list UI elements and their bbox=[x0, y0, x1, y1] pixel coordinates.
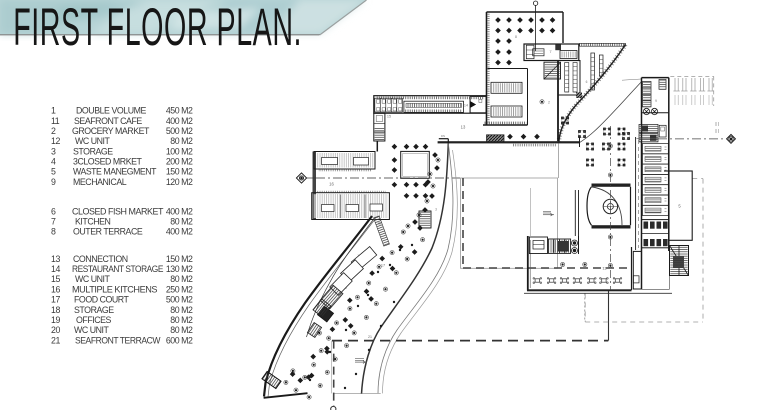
svg-text:GROCERY MARKET: GROCERY MARKET bbox=[72, 126, 150, 136]
svg-text:CONNECTION: CONNECTION bbox=[73, 254, 128, 264]
svg-text:STORAGE: STORAGE bbox=[74, 305, 114, 315]
svg-text:OUTER TERRACE: OUTER TERRACE bbox=[73, 227, 143, 237]
svg-text:3CLOSED MRKET: 3CLOSED MRKET bbox=[73, 156, 143, 166]
svg-text:FIRST FLOOR PLAN.: FIRST FLOOR PLAN. bbox=[13, 0, 302, 56]
svg-text:130 M2: 130 M2 bbox=[166, 264, 193, 274]
svg-text:120 M2: 120 M2 bbox=[166, 177, 193, 187]
svg-text:DOUBLE VOLUME: DOUBLE VOLUME bbox=[76, 106, 147, 116]
svg-text:21: 21 bbox=[368, 335, 372, 339]
svg-text:13: 13 bbox=[51, 254, 60, 264]
svg-text:80 M2: 80 M2 bbox=[170, 217, 193, 227]
svg-text:400 M2: 400 M2 bbox=[166, 227, 193, 237]
svg-text:4: 4 bbox=[51, 156, 56, 166]
svg-text:80 M2: 80 M2 bbox=[170, 274, 193, 284]
svg-text:17: 17 bbox=[381, 264, 385, 268]
svg-text:19: 19 bbox=[51, 315, 60, 325]
svg-text:80 M2: 80 M2 bbox=[170, 136, 193, 146]
svg-text:20: 20 bbox=[51, 325, 60, 335]
svg-text:16: 16 bbox=[51, 284, 60, 294]
svg-text:2: 2 bbox=[548, 101, 550, 105]
svg-text:200 M2: 200 M2 bbox=[166, 156, 193, 166]
svg-text:9: 9 bbox=[655, 99, 657, 103]
svg-text:500 M2: 500 M2 bbox=[166, 295, 193, 305]
svg-text:3: 3 bbox=[51, 146, 56, 156]
svg-text:150 M2: 150 M2 bbox=[166, 254, 193, 264]
svg-text:450 M2: 450 M2 bbox=[166, 106, 193, 116]
svg-text:OFFICES: OFFICES bbox=[76, 315, 112, 325]
svg-text:400 M2: 400 M2 bbox=[166, 207, 193, 217]
svg-text:500 M2: 500 M2 bbox=[166, 126, 193, 136]
svg-text:11: 11 bbox=[51, 116, 60, 126]
svg-text:15: 15 bbox=[387, 115, 391, 119]
svg-text:80 M2: 80 M2 bbox=[170, 325, 193, 335]
svg-text:13: 13 bbox=[461, 125, 466, 130]
svg-text:14: 14 bbox=[51, 264, 60, 274]
svg-text:DN: DN bbox=[441, 134, 445, 138]
svg-text:WC UNIT: WC UNIT bbox=[74, 325, 110, 335]
svg-text:100 M2: 100 M2 bbox=[166, 146, 193, 156]
svg-text:WASTE MANEGMENT: WASTE MANEGMENT bbox=[73, 167, 157, 177]
svg-text:17: 17 bbox=[51, 295, 60, 305]
svg-text:8: 8 bbox=[515, 35, 517, 39]
svg-text:14: 14 bbox=[464, 104, 468, 108]
svg-text:CLOSED FISH MARKET: CLOSED FISH MARKET bbox=[72, 207, 164, 217]
svg-text:600 M2: 600 M2 bbox=[166, 335, 193, 345]
svg-text:SEAFRONT CAFE: SEAFRONT CAFE bbox=[74, 116, 142, 126]
svg-text:KITCHEN: KITCHEN bbox=[75, 217, 111, 227]
svg-text:6: 6 bbox=[51, 207, 56, 217]
svg-text:8: 8 bbox=[51, 227, 56, 237]
svg-text:16: 16 bbox=[329, 182, 334, 187]
svg-text:5: 5 bbox=[678, 204, 681, 209]
svg-text:1: 1 bbox=[51, 106, 56, 116]
svg-text:18: 18 bbox=[51, 305, 60, 315]
svg-text:7: 7 bbox=[549, 49, 552, 54]
svg-text:80 M2: 80 M2 bbox=[170, 305, 193, 315]
svg-text:21: 21 bbox=[51, 335, 60, 345]
svg-text:WC UNIT: WC UNIT bbox=[75, 136, 111, 146]
svg-text:MULTIPLE KITCHENS: MULTIPLE KITCHENS bbox=[72, 284, 158, 294]
svg-text:3: 3 bbox=[435, 208, 437, 212]
svg-text:250 M2: 250 M2 bbox=[166, 284, 193, 294]
svg-text:12: 12 bbox=[51, 136, 60, 146]
svg-text:80 M2: 80 M2 bbox=[170, 315, 193, 325]
svg-text:FOOD COURT: FOOD COURT bbox=[74, 295, 130, 305]
svg-text:5: 5 bbox=[51, 167, 56, 177]
svg-text:7: 7 bbox=[51, 217, 56, 227]
svg-text:9: 9 bbox=[51, 177, 56, 187]
svg-text:SEAFRONT TERRACW: SEAFRONT TERRACW bbox=[75, 335, 161, 345]
svg-text:150 M2: 150 M2 bbox=[166, 167, 193, 177]
svg-text:RESTAURANT STORAGE: RESTAURANT STORAGE bbox=[72, 264, 164, 274]
svg-text:400 M2: 400 M2 bbox=[166, 116, 193, 126]
svg-text:15: 15 bbox=[51, 274, 60, 284]
svg-text:2: 2 bbox=[51, 126, 56, 136]
svg-text:STORAGE: STORAGE bbox=[73, 146, 113, 156]
svg-text:6: 6 bbox=[586, 80, 588, 84]
svg-text:WC UNIT: WC UNIT bbox=[75, 274, 111, 284]
svg-text:MECHANICAL: MECHANICAL bbox=[73, 177, 127, 187]
